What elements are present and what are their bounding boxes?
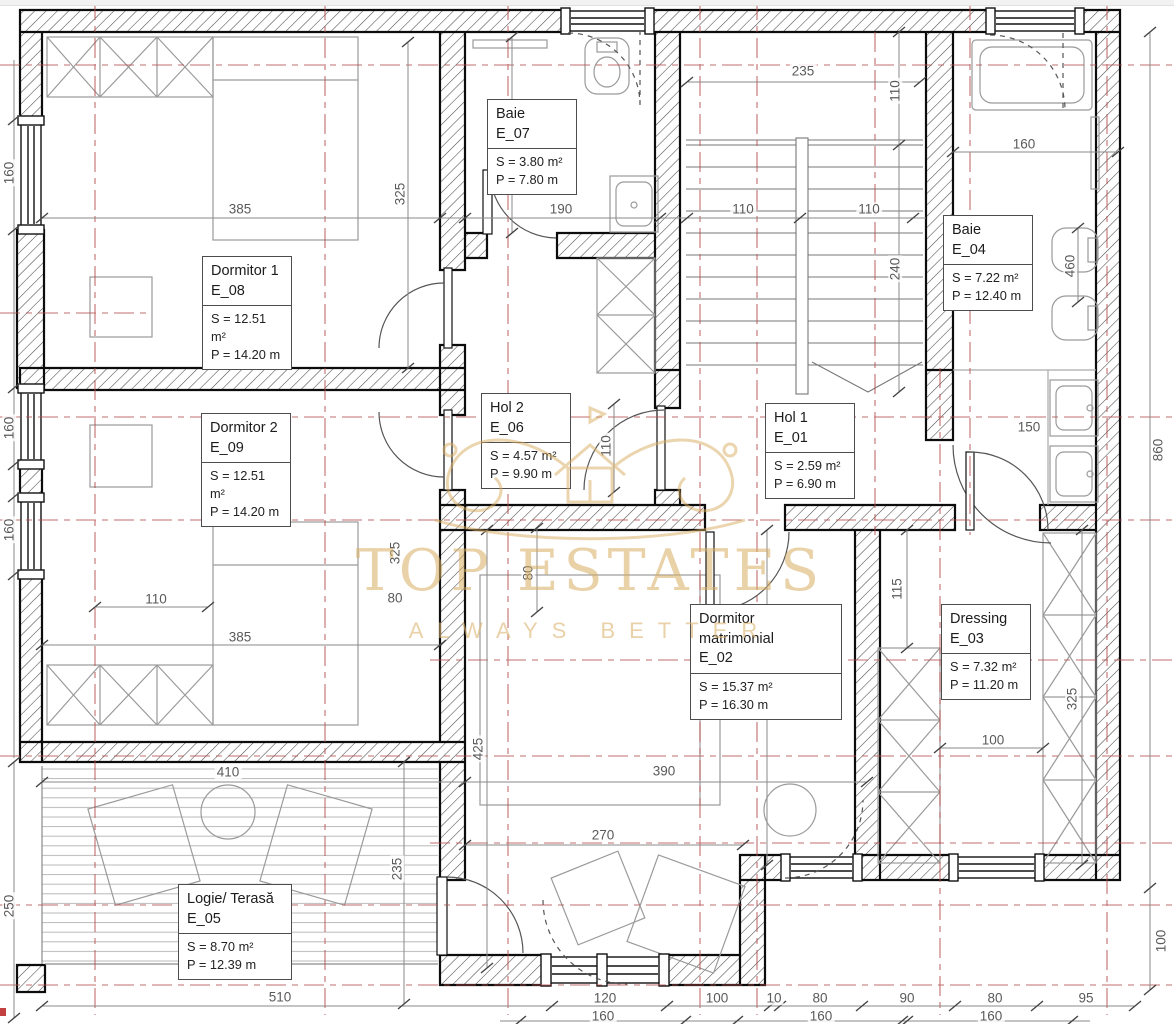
dimension-label: 100: [704, 991, 731, 1005]
room-label-hol1-e01: Hol 1E_01 S = 2.59 m²P = 6.90 m: [765, 403, 855, 499]
dimension-label: 160: [2, 160, 16, 187]
room-code: E_08: [211, 282, 283, 302]
window: [18, 116, 44, 234]
dimension-label: 325: [388, 540, 402, 567]
dimension-label: 325: [1065, 686, 1079, 713]
door-arc-dormitor1: [379, 283, 444, 348]
bathtub-baie04: [972, 40, 1092, 110]
floor-plan-page: 385 325 200 190 235 110 110 110 240 160 …: [0, 0, 1174, 1024]
room-perimeter: P = 14.20 m: [210, 503, 282, 521]
dimension-label: 425: [471, 736, 485, 763]
room-area: S = 7.32 m²: [950, 658, 1022, 676]
room-name: Baie: [952, 221, 1024, 241]
room-code: E_04: [952, 241, 1024, 261]
dimension-label: 860: [1151, 437, 1165, 464]
bed-matrimonial: [480, 575, 720, 805]
room-perimeter: P = 12.39 m: [187, 956, 283, 974]
room-label-dormitor1-e08: Dormitor 1E_08 S = 12.51 m²P = 14.20 m: [202, 256, 292, 370]
sink-baie07: [610, 176, 658, 232]
wardrobe-dormitor2: [47, 665, 213, 725]
room-code: E_01: [774, 429, 846, 449]
room-area: S = 15.37 m²: [699, 678, 833, 696]
dimension-label: 410: [215, 765, 242, 779]
corner-marker: [0, 1008, 6, 1016]
door-arc-terrace: [447, 877, 523, 953]
room-code: E_09: [210, 439, 282, 459]
dimension-label: 385: [227, 630, 254, 644]
dimension-label: 115: [890, 576, 904, 602]
room-label-logie-e05: Logie/ TerasăE_05 S = 8.70 m²P = 12.39 m: [178, 884, 292, 980]
room-label-dressing-e03: DressingE_03 S = 7.32 m²P = 11.20 m: [941, 604, 1031, 700]
room-name: Logie/ Terasă: [187, 890, 283, 910]
room-code: E_07: [496, 125, 568, 145]
room-area: S = 12.51 m²: [211, 310, 283, 346]
window: [949, 854, 1044, 881]
dimension-label: 390: [651, 764, 678, 778]
dimension-label: 325: [393, 181, 407, 208]
room-name: Dormitor 2: [210, 419, 282, 439]
room-code: E_06: [490, 419, 562, 439]
dimension-label: 100: [980, 733, 1007, 747]
dimension-label: 385: [227, 202, 254, 216]
dimension-label: 110: [856, 202, 882, 216]
dimension-label: 110: [143, 592, 169, 606]
dimension-label: 160: [808, 1009, 835, 1023]
dimension-label: 160: [1011, 137, 1038, 151]
room-label-baie-e04: BaieE_04 S = 7.22 m²P = 12.40 m: [943, 215, 1033, 311]
dimension-label: 190: [548, 202, 575, 216]
door-arc-dormitor2: [379, 412, 444, 477]
dimension-label: 160: [978, 1009, 1005, 1023]
room-area: S = 3.80 m²: [496, 153, 568, 171]
room-area: S = 8.70 m²: [187, 938, 283, 956]
dimension-label: 510: [267, 990, 294, 1004]
dimension-label: 160: [2, 415, 16, 442]
room-label-dormitor2-e09: Dormitor 2E_09 S = 12.51 m²P = 14.20 m: [201, 413, 291, 527]
room-name: Baie: [496, 105, 568, 125]
stair-direction-arrow-icon: [812, 362, 922, 392]
room-perimeter: P = 9.90 m: [490, 465, 562, 483]
page-top-edge: [0, 0, 1174, 6]
room-name: Dormitor matrimonial: [699, 610, 833, 649]
toilet-baie07: [585, 38, 629, 94]
nightstand: [90, 425, 152, 487]
room-perimeter: P = 16.30 m: [699, 696, 833, 714]
dimension-label: 160: [2, 517, 16, 544]
dimension-label: 460: [1063, 253, 1077, 280]
room-code: E_02: [699, 649, 833, 669]
dimension-label: 95: [1076, 991, 1095, 1005]
shelf-baie07: [473, 40, 547, 48]
dimension-label: 100: [1154, 928, 1168, 955]
wardrobe-dormitor1: [47, 37, 213, 97]
window: [18, 384, 44, 469]
dimension-label: 120: [592, 991, 619, 1005]
room-perimeter: P = 12.40 m: [952, 287, 1024, 305]
room-perimeter: P = 7.80 m: [496, 171, 568, 189]
dimension-label: 10: [764, 991, 783, 1005]
window: [781, 854, 862, 881]
dimension-label: 110: [888, 78, 902, 104]
door-arc-matrimonial: [710, 532, 789, 611]
room-perimeter: P = 11.20 m: [950, 676, 1022, 694]
room-area: S = 4.57 m²: [490, 447, 562, 465]
dimension-label: 110: [730, 202, 756, 216]
dimension-label: 80: [810, 991, 829, 1005]
wardrobe-hol2: [597, 258, 655, 373]
room-area: S = 2.59 m²: [774, 457, 846, 475]
dimension-label: 110: [599, 433, 613, 459]
room-perimeter: P = 6.90 m: [774, 475, 846, 493]
dimension-label: 150: [1016, 420, 1043, 434]
room-name: Hol 2: [490, 399, 562, 419]
room-area: S = 7.22 m²: [952, 269, 1024, 287]
door-arc-dressing: [970, 452, 1048, 530]
room-perimeter: P = 14.20 m: [211, 346, 283, 364]
room-name: Dormitor 1: [211, 262, 283, 282]
bidet-baie04: [1052, 296, 1098, 340]
round-table: [764, 784, 816, 836]
bed-dormitor2: [213, 522, 358, 725]
room-name: Hol 1: [774, 409, 846, 429]
dimension-label: 240: [888, 256, 902, 283]
room-area: S = 12.51 m²: [210, 467, 282, 503]
dimension-label: 80: [985, 991, 1004, 1005]
dimension-label: 160: [590, 1009, 617, 1023]
dimension-label: 235: [390, 856, 404, 883]
room-code: E_03: [950, 630, 1022, 650]
room-code: E_05: [187, 910, 283, 930]
dimension-label: 90: [897, 991, 916, 1005]
dimension-label: 80: [385, 591, 404, 605]
dimension-label: 250: [2, 893, 16, 920]
room-label-baie-e07: BaieE_07 S = 3.80 m²P = 7.80 m: [487, 99, 577, 195]
window: [541, 954, 669, 986]
room-label-matrimonial-e02: Dormitor matrimonialE_02 S = 15.37 m²P =…: [690, 604, 842, 720]
dimension-label: 235: [790, 64, 817, 78]
door-arc-hol2: [584, 410, 664, 490]
window: [18, 493, 44, 579]
dimension-label: 270: [590, 828, 617, 842]
dimension-label: 80: [521, 563, 535, 582]
sink-double-baie04: [1050, 380, 1098, 502]
room-name: Dressing: [950, 610, 1022, 630]
room-label-hol2-e06: Hol 2E_06 S = 4.57 m²P = 9.90 m: [481, 393, 571, 489]
window: [986, 8, 1084, 34]
floor-plan-drawing: [0, 0, 1174, 1024]
nightstand: [90, 277, 152, 337]
